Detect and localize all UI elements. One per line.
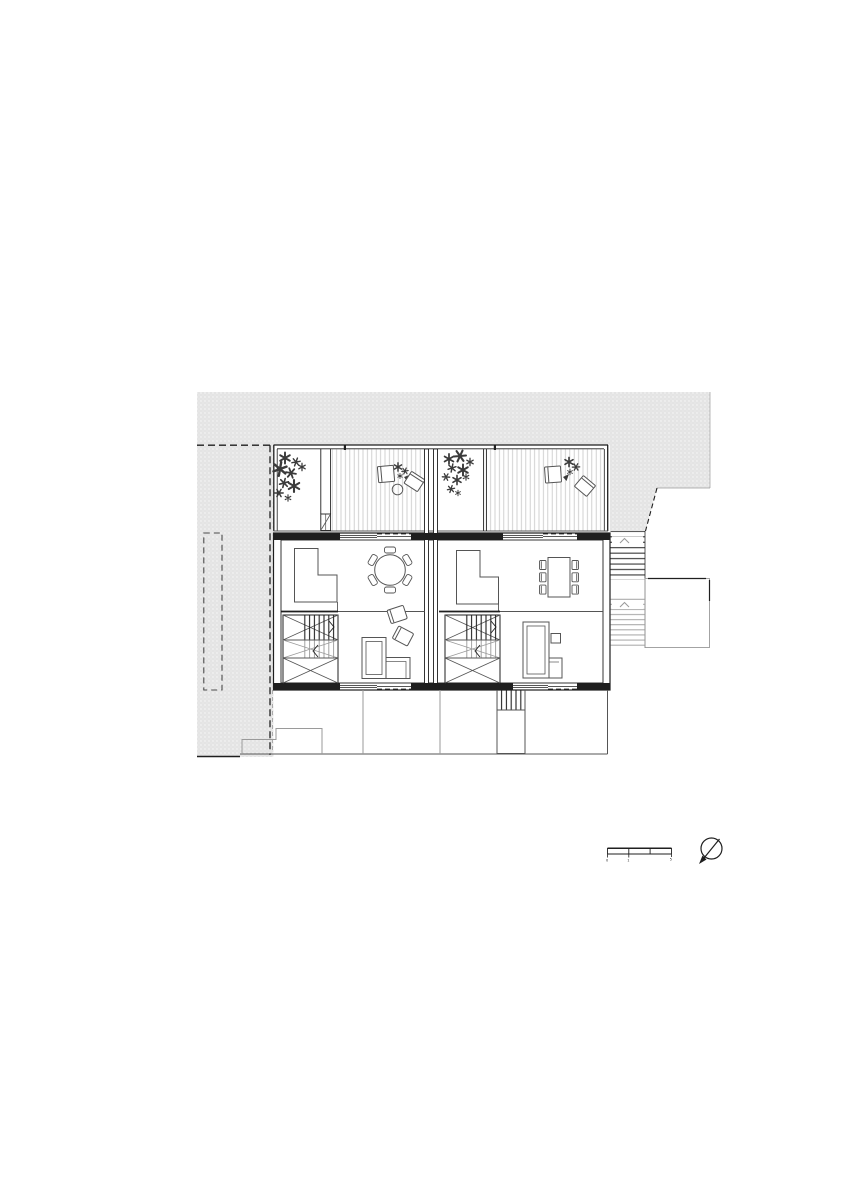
- armchair-2: [392, 626, 414, 646]
- floor-plan-drawing: 0 1 5: [0, 0, 847, 1200]
- dining-chairs-b: [540, 561, 579, 595]
- unit-b-interior: [439, 551, 603, 684]
- terrace-screen-unit-b: [484, 449, 487, 531]
- planting-bed-unit-a: [273, 452, 305, 501]
- kitchen-counter-a: [295, 549, 338, 603]
- armchair-1: [387, 605, 407, 624]
- external-stair: [611, 531, 710, 648]
- scale-label-1: 1: [627, 859, 629, 863]
- terrace-block: [274, 445, 609, 532]
- north-arrow-icon: [699, 838, 722, 864]
- corner-sofa-b: [523, 622, 562, 678]
- scale-bar: 0 1 5: [606, 848, 672, 863]
- scale-label-0: 0: [606, 859, 608, 863]
- kitchen-counter-b: [457, 551, 499, 605]
- dining-chairs-a: [367, 547, 412, 593]
- stair-unit-a: [283, 615, 338, 683]
- stair-unit-b: [445, 615, 500, 683]
- decking-unit-a: [332, 449, 424, 531]
- lower-external-stair: [497, 690, 525, 754]
- scale-label-5: 5: [670, 858, 672, 862]
- lounge-chair-a1: [377, 465, 394, 482]
- party-wall: [425, 449, 429, 690]
- round-dining-table: [375, 555, 406, 586]
- lounge-chair-b1: [544, 466, 561, 483]
- planting-bed-unit-b: [441, 448, 473, 495]
- terrace-screen-unit-a: [321, 449, 331, 531]
- lower-level-footprint: [240, 690, 608, 754]
- dining-table-b: [548, 558, 570, 598]
- floor-plan-canvas: 0 1 5: [0, 0, 847, 1200]
- unit-a-interior: [281, 547, 425, 683]
- side-table-b: [551, 634, 561, 644]
- landing-platform: [645, 579, 710, 648]
